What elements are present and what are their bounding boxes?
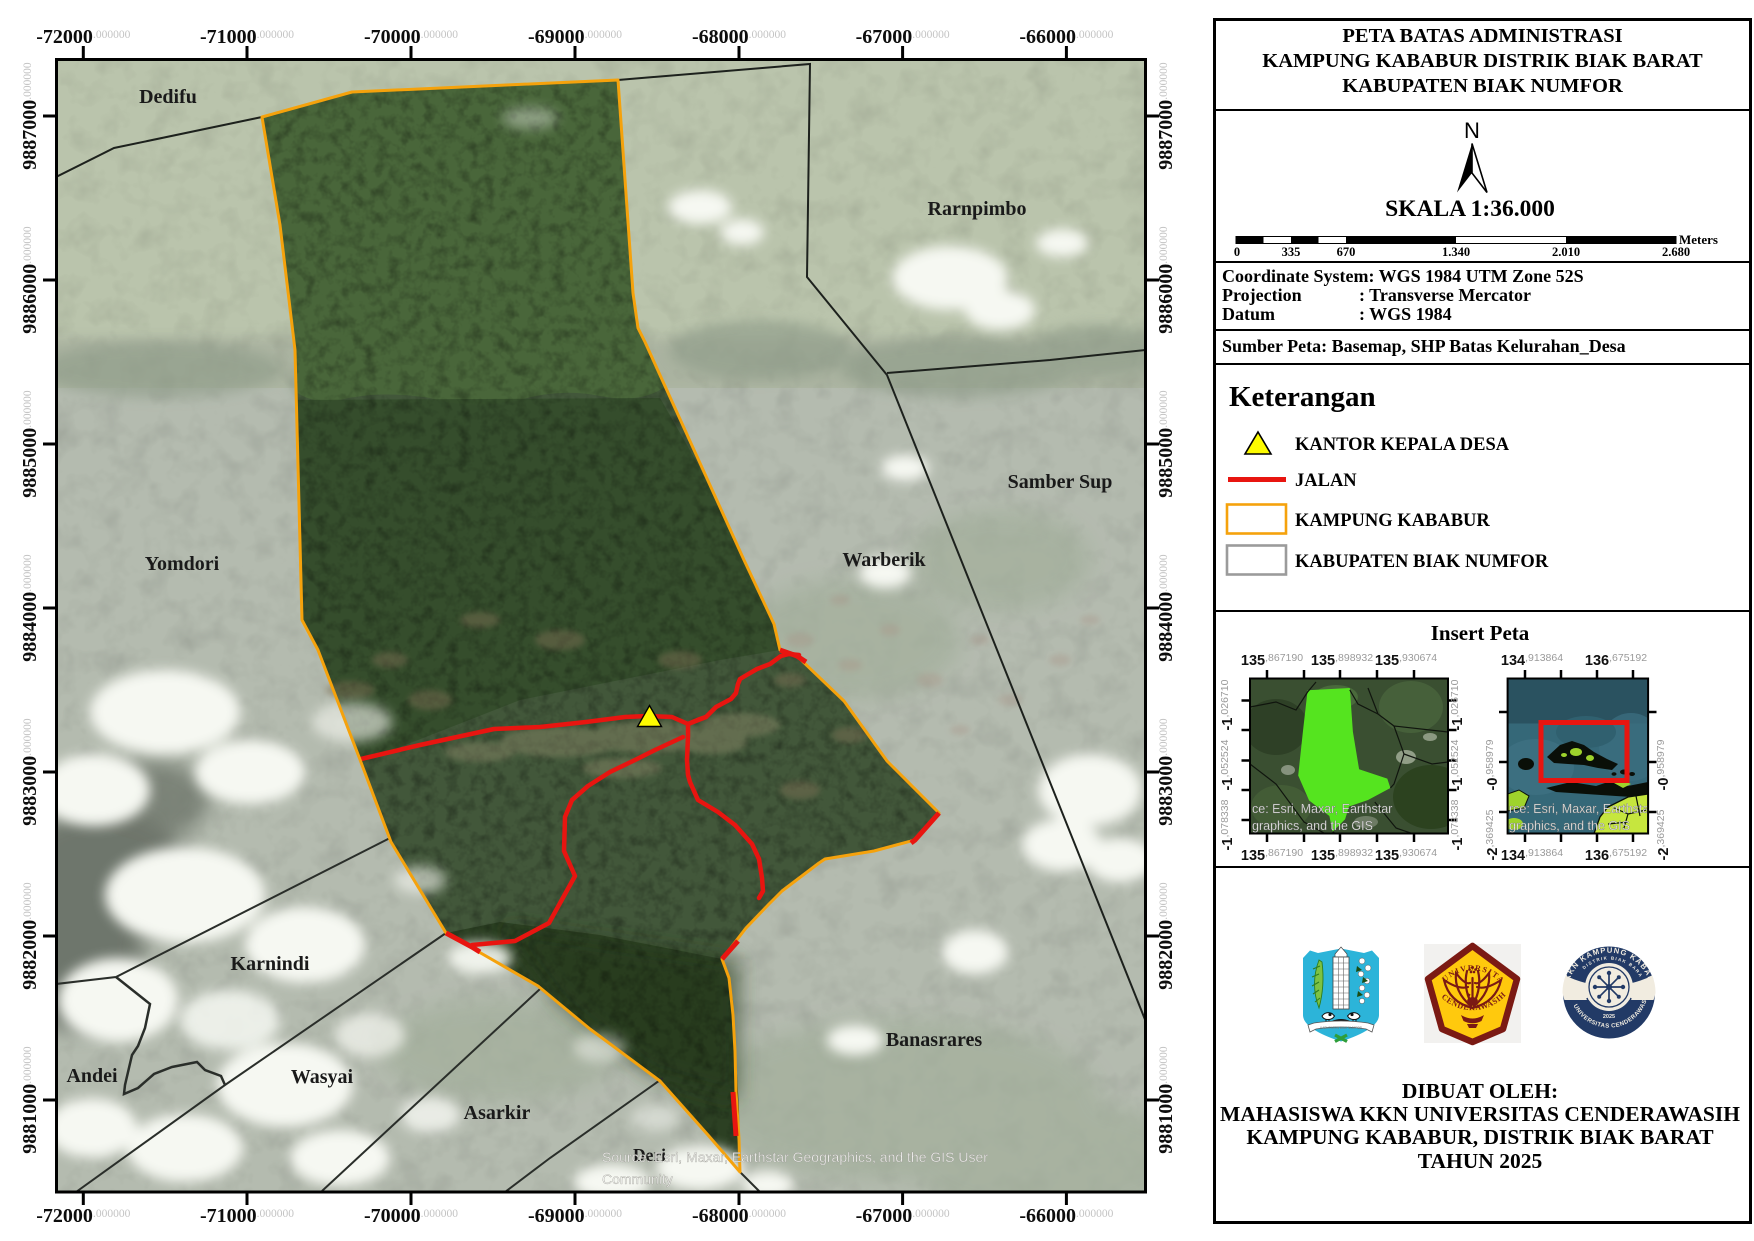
svg-text:Source: Esri, Maxar, Earthstar: Source: Esri, Maxar, Earthstar Geographi… — [602, 1149, 988, 1165]
svg-text:Yomdori: Yomdori — [145, 553, 220, 575]
svg-text:Asarkir: Asarkir — [464, 1102, 531, 1124]
svg-text:136,675192: 136,675192 — [1585, 847, 1647, 864]
svg-text:Banasrares: Banasrares — [886, 1029, 983, 1051]
svg-text:KABUPATEN BIAK NUMFOR: KABUPATEN BIAK NUMFOR — [1295, 552, 1549, 572]
svg-text:KANTOR KEPALA DESA: KANTOR KEPALA DESA — [1295, 435, 1510, 455]
svg-text:9883000.000000: 9883000.000000 — [19, 718, 41, 826]
svg-text:-1,078338: -1,078338 — [1449, 799, 1466, 850]
svg-text:Karnindi: Karnindi — [231, 953, 310, 975]
svg-text:1.340: 1.340 — [1442, 245, 1470, 259]
svg-text:9884000.000000: 9884000.000000 — [1155, 554, 1177, 662]
svg-text:9886000.000000: 9886000.000000 — [19, 226, 41, 334]
svg-text:N: N — [1464, 118, 1480, 143]
svg-text:-1,052524: -1,052524 — [1449, 739, 1466, 790]
svg-text:MAHASISWA KKN UNIVERSITAS CEND: MAHASISWA KKN UNIVERSITAS CENDERAWASIH — [1220, 1102, 1740, 1126]
svg-text:135,930674: 135,930674 — [1375, 652, 1437, 669]
svg-text:135,898932: 135,898932 — [1311, 847, 1373, 864]
svg-text:Dedifu: Dedifu — [139, 86, 197, 108]
svg-text:-69000.000000: -69000.000000 — [528, 26, 622, 48]
svg-text:135,867190: 135,867190 — [1241, 652, 1303, 669]
svg-text:rce: Esri, Maxar, Earthstar: rce: Esri, Maxar, Earthstar — [1509, 802, 1653, 816]
svg-text:KABUPATEN BIAK NUMFOR: KABUPATEN BIAK NUMFOR — [1320, 1026, 1363, 1030]
svg-text:335: 335 — [1282, 245, 1301, 259]
svg-text:2.680: 2.680 — [1662, 245, 1690, 259]
svg-text:Wasyai: Wasyai — [291, 1066, 354, 1088]
svg-text:-1,078338: -1,078338 — [1219, 799, 1236, 850]
svg-text:Community: Community — [602, 1171, 673, 1187]
svg-text:9881000.000000: 9881000.000000 — [1155, 1046, 1177, 1154]
svg-text:TAHUN 2025: TAHUN 2025 — [1418, 1149, 1542, 1173]
svg-text:-69000.000000: -69000.000000 — [528, 1205, 622, 1227]
svg-text:135,867190: 135,867190 — [1241, 847, 1303, 864]
svg-text:-70000.000000: -70000.000000 — [364, 1205, 458, 1227]
svg-text:-0,958979: -0,958979 — [1484, 739, 1501, 790]
svg-text:-0,958979: -0,958979 — [1655, 739, 1672, 790]
svg-text:2.010: 2.010 — [1552, 245, 1580, 259]
svg-text:2025: 2025 — [1603, 1014, 1615, 1020]
svg-text:136,675192: 136,675192 — [1585, 652, 1647, 669]
svg-text:DIBUAT OLEH:: DIBUAT OLEH: — [1402, 1079, 1558, 1103]
svg-text:-2,369425: -2,369425 — [1484, 809, 1501, 860]
svg-text:Samber Sup: Samber Sup — [1008, 471, 1113, 493]
svg-text:graphics, and the GIS: graphics, and the GIS — [1252, 819, 1373, 833]
svg-text:Warberik: Warberik — [842, 549, 926, 571]
svg-text:graphics, and the GIS: graphics, and the GIS — [1509, 819, 1630, 833]
svg-text:Insert Peta: Insert Peta — [1431, 621, 1530, 645]
svg-text:Keterangan: Keterangan — [1229, 381, 1376, 413]
svg-text:ce: Esri, Maxar, Earthstar: ce: Esri, Maxar, Earthstar — [1252, 802, 1392, 816]
svg-text:9881000.000000: 9881000.000000 — [19, 1046, 41, 1154]
svg-text:-1,026710: -1,026710 — [1219, 679, 1236, 730]
svg-text:-66000.000000: -66000.000000 — [1019, 1205, 1113, 1227]
svg-text:135,930674: 135,930674 — [1375, 847, 1437, 864]
svg-text:-72000.000000: -72000.000000 — [36, 1205, 130, 1227]
svg-text:SKALA 1:36.000: SKALA 1:36.000 — [1385, 196, 1555, 222]
svg-text:-72000.000000: -72000.000000 — [36, 26, 130, 48]
svg-text:9887000.000000: 9887000.000000 — [19, 62, 41, 170]
svg-text:9885000.000000: 9885000.000000 — [1155, 390, 1177, 498]
svg-text:-67000.000000: -67000.000000 — [856, 26, 950, 48]
svg-text:-70000.000000: -70000.000000 — [364, 26, 458, 48]
svg-text:9884000.000000: 9884000.000000 — [19, 554, 41, 662]
svg-text:134,913864: 134,913864 — [1501, 847, 1563, 864]
svg-text:9886000.000000: 9886000.000000 — [1155, 226, 1177, 334]
svg-text:9887000.000000: 9887000.000000 — [1155, 62, 1177, 170]
svg-text:KAMPUNG KABABUR, DISTRIK BIAK: KAMPUNG KABABUR, DISTRIK BIAK BARAT — [1246, 1125, 1714, 1149]
svg-text:135,898932: 135,898932 — [1311, 652, 1373, 669]
svg-text:-68000.000000: -68000.000000 — [692, 1205, 786, 1227]
svg-text:-2,369425: -2,369425 — [1655, 809, 1672, 860]
svg-text:-67000.000000: -67000.000000 — [856, 1205, 950, 1227]
svg-text:KAMPUNG KABABUR: KAMPUNG KABABUR — [1295, 511, 1490, 531]
svg-text:9882000.000000: 9882000.000000 — [19, 882, 41, 990]
svg-text:9883000.000000: 9883000.000000 — [1155, 718, 1177, 826]
svg-text:-1,026710: -1,026710 — [1449, 679, 1466, 730]
svg-text:-68000.000000: -68000.000000 — [692, 26, 786, 48]
svg-text:JALAN: JALAN — [1295, 471, 1357, 491]
svg-text:Andei: Andei — [66, 1065, 118, 1087]
svg-text:-66000.000000: -66000.000000 — [1019, 26, 1113, 48]
svg-text:-71000.000000: -71000.000000 — [200, 26, 294, 48]
svg-text:Rarnpimbo: Rarnpimbo — [928, 198, 1027, 220]
svg-text:134,913864: 134,913864 — [1501, 652, 1563, 669]
svg-text:-1,052524: -1,052524 — [1219, 739, 1236, 790]
svg-text:9882000.000000: 9882000.000000 — [1155, 882, 1177, 990]
svg-text:9885000.000000: 9885000.000000 — [19, 390, 41, 498]
svg-text:670: 670 — [1337, 245, 1356, 259]
svg-text:-71000.000000: -71000.000000 — [200, 1205, 294, 1227]
svg-text:0: 0 — [1234, 245, 1240, 259]
